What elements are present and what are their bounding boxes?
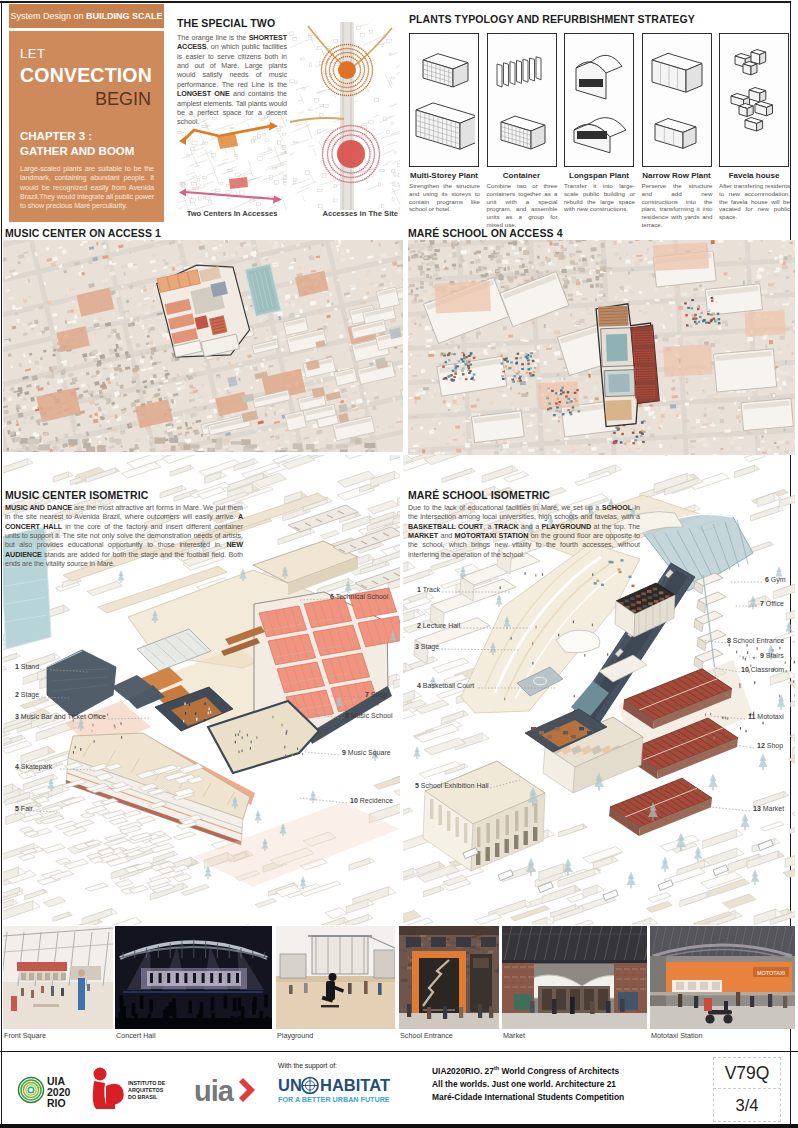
svg-text:HABITAT: HABITAT (320, 1076, 390, 1094)
svg-text:RIO: RIO (47, 1097, 66, 1109)
svg-text:INSTITUTO DE: INSTITUTO DE (128, 1080, 166, 1086)
svg-text:UN: UN (278, 1076, 302, 1094)
svg-text:MOTOTAXI: MOTOTAXI (757, 970, 786, 976)
svg-text:DO BRASIL: DO BRASIL (128, 1094, 158, 1100)
svg-text:uia: uia (194, 1075, 235, 1107)
svg-text:With the support of:: With the support of: (278, 1062, 337, 1070)
svg-text:FOR A BETTER URBAN FUTURE: FOR A BETTER URBAN FUTURE (278, 1095, 390, 1104)
svg-text:ARQUITETOS: ARQUITETOS (128, 1087, 164, 1093)
